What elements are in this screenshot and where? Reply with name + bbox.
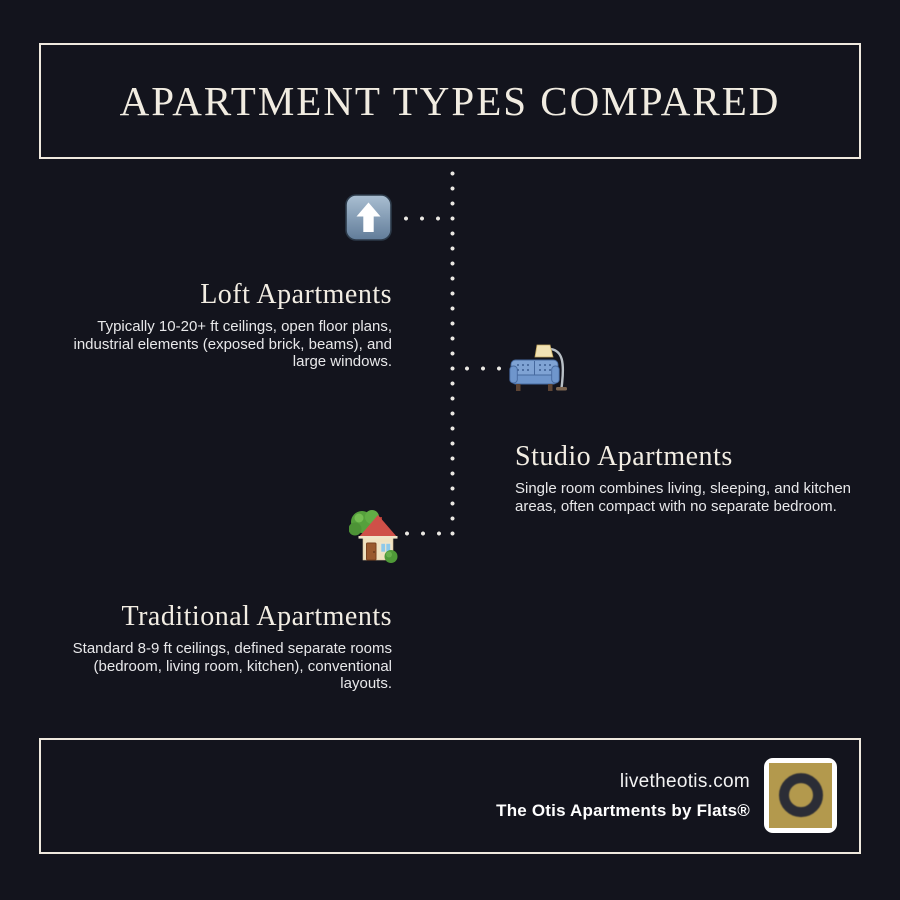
website-url: livetheotis.com (496, 771, 750, 793)
infographic-canvas: APARTMENT TYPES COMPARED (0, 0, 900, 900)
footer-text-block: livetheotis.com The Otis Apartments by F… (496, 771, 750, 821)
traditional-description: Standard 8-9 ft ceilings, defined separa… (57, 640, 392, 693)
brand-name: The Otis Apartments by Flats® (496, 801, 750, 821)
studio-title: Studio Apartments (515, 441, 870, 473)
footer-box: livetheotis.com The Otis Apartments by F… (39, 738, 861, 854)
studio-connector-dots (459, 366, 507, 371)
house-garden-icon (349, 508, 399, 569)
title-box: APARTMENT TYPES COMPARED (39, 43, 861, 159)
traditional-connector-dots (399, 531, 447, 536)
traditional-title: Traditional Apartments (57, 601, 392, 633)
up-arrow-icon (345, 194, 392, 246)
loft-description: Typically 10-20+ ft ceilings, open floor… (57, 318, 392, 371)
section-traditional-apartments: Traditional Apartments Standard 8-9 ft c… (57, 601, 392, 693)
otis-logo (764, 758, 837, 833)
page-title: APARTMENT TYPES COMPARED (120, 77, 781, 125)
timeline-vertical-dotted-line (450, 166, 455, 541)
section-studio-apartments: Studio Apartments Single room combines l… (515, 441, 870, 515)
otis-logo-background (769, 763, 832, 828)
otis-logo-ring (779, 773, 823, 817)
studio-description: Single room combines living, sleeping, a… (515, 480, 870, 515)
loft-title: Loft Apartments (57, 279, 392, 311)
section-loft-apartments: Loft Apartments Typically 10-20+ ft ceil… (57, 279, 392, 371)
loft-connector-dots (398, 216, 446, 221)
couch-lamp-icon (509, 343, 568, 403)
